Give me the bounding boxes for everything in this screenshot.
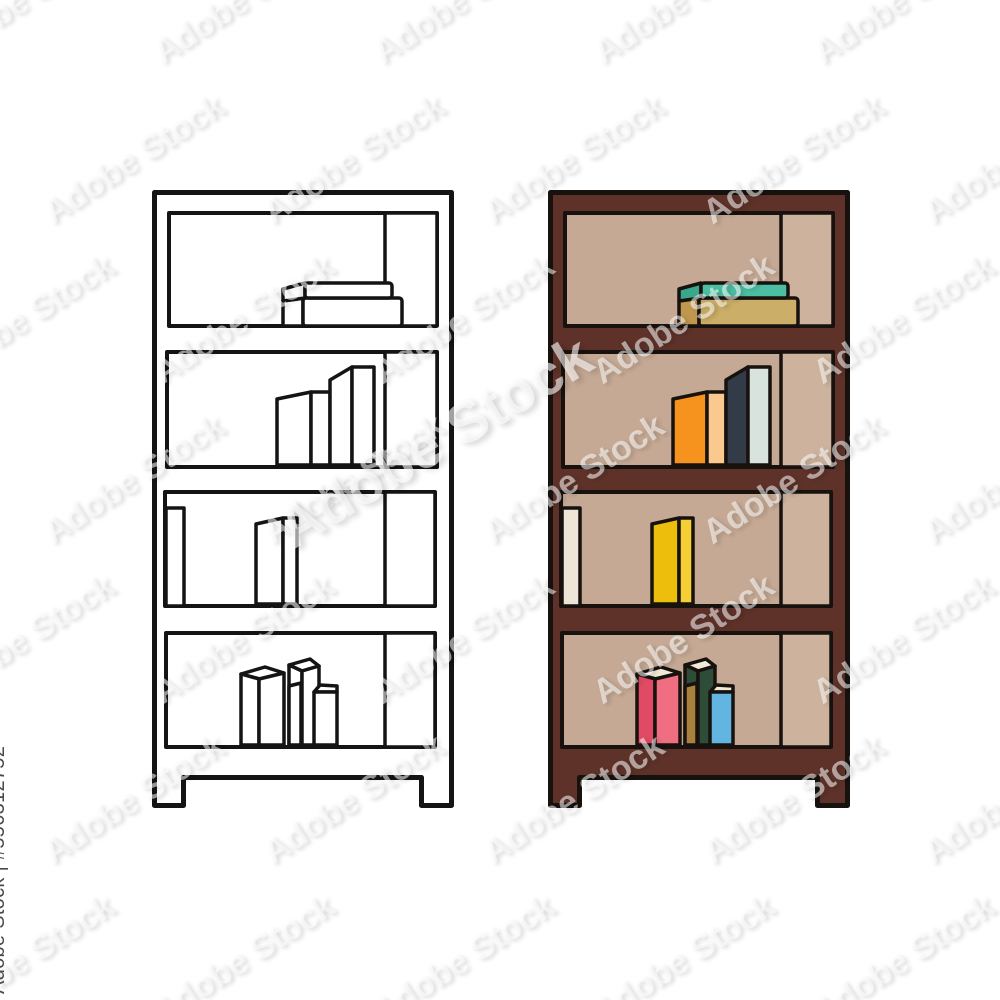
watermark-tile: Adobe Stock [0, 567, 122, 713]
book-navy-spine [748, 367, 770, 465]
book-cream [562, 508, 580, 606]
book-mustard [289, 683, 301, 745]
book-yellow-front [256, 518, 283, 604]
watermark-layer: Adobe StockAdobe StockAdobe StockAdobe S… [0, 0, 1000, 1000]
book-blue [314, 692, 337, 745]
watermark-tile: Adobe Stock [806, 0, 1000, 72]
watermark-tile: Adobe Stock [916, 727, 1000, 873]
shelf-side-panel-4 [385, 633, 435, 747]
shelf-side-panel-3 [385, 492, 435, 606]
book-mustard [685, 683, 697, 745]
watermark-tile: Adobe Stock [586, 887, 782, 1000]
book-orange-spine [311, 392, 330, 465]
stacked-book-top [305, 283, 392, 298]
watermark-id-label: Adobe Stock | #556312752 [0, 746, 10, 994]
watermark-tile: Adobe Stock [916, 407, 1000, 553]
book-yellow-spine [679, 518, 693, 604]
book-blue [710, 692, 733, 745]
book-pink-front [637, 674, 655, 745]
watermark-tile: Adobe Stock [366, 887, 562, 1000]
watermark-tile: Adobe Stock [0, 887, 122, 1000]
book-orange-front [277, 392, 311, 465]
watermark-tile: Adobe Stock [0, 0, 122, 72]
book-navy-front [726, 367, 748, 465]
book-cream [166, 508, 184, 606]
stacked-book-bottom [699, 298, 798, 326]
stacked-book-top [701, 283, 788, 298]
book-yellow-front [652, 518, 679, 604]
watermark-tile: Adobe Stock [146, 887, 342, 1000]
book-orange-spine [707, 392, 726, 465]
shelf-side-panel-4 [781, 633, 831, 747]
watermark-tile: Adobe Stock [366, 0, 562, 72]
book-pink-spine [259, 673, 284, 745]
stacked-book-bottom [303, 298, 402, 326]
watermark-tile: Adobe Stock [0, 247, 122, 393]
watermark-tile: Adobe Stock [586, 0, 782, 72]
book-orange-front [673, 392, 707, 465]
stock-image-canvas: Adobe StockAdobe StockAdobe StockAdobe S… [0, 0, 1000, 1000]
watermark-tile: Adobe Stock [916, 87, 1000, 233]
shelf-side-panel-3 [781, 492, 831, 606]
watermark-tile: Adobe Stock [806, 887, 1000, 1000]
book-navy-front [330, 367, 352, 465]
shelf-side-panel-2 [781, 352, 833, 467]
book-pink-spine [655, 673, 680, 745]
bookcase-colored [548, 190, 850, 808]
watermark-tile: Adobe Stock [146, 0, 342, 72]
bookcase-colored-illustration [548, 190, 850, 808]
book-pink-front [241, 674, 259, 745]
